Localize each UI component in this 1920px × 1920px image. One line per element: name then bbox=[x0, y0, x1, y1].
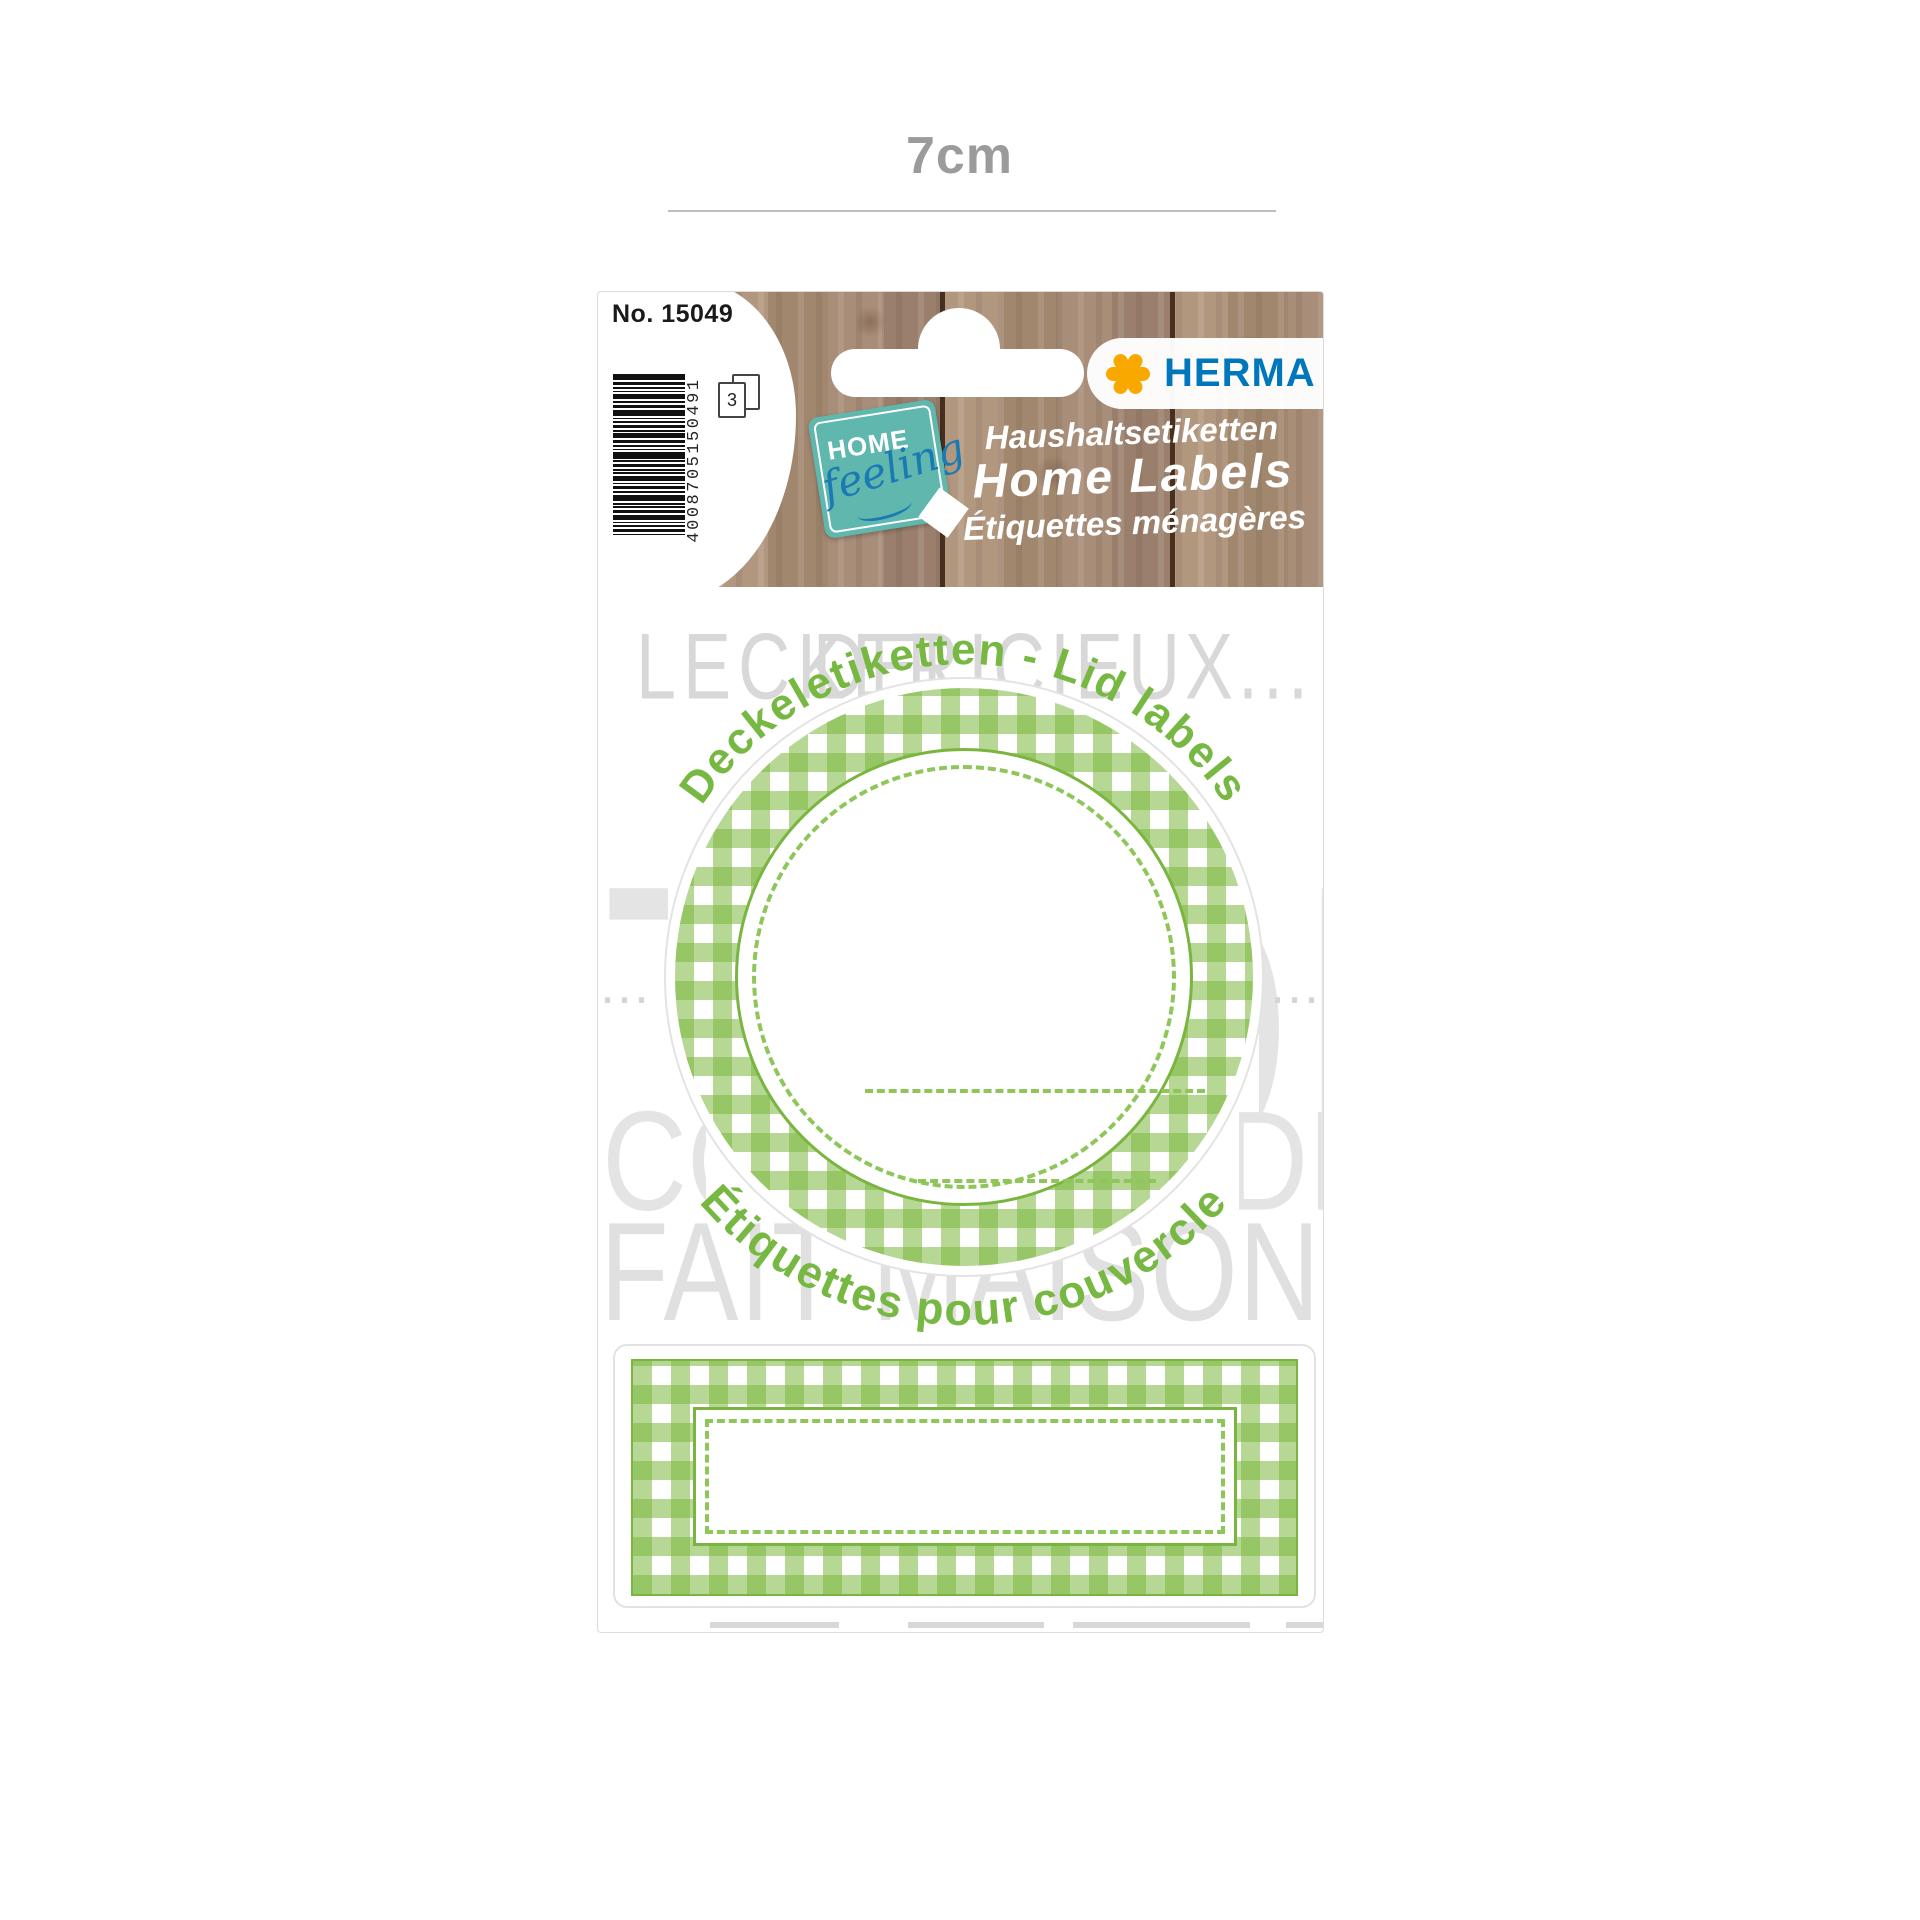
brand-band: HERMA bbox=[1087, 338, 1323, 409]
clipped-watermark-base bbox=[710, 1622, 839, 1628]
rect-label-gingham bbox=[631, 1359, 1298, 1596]
barcode-digits: 4008705150491 bbox=[685, 374, 705, 546]
clipped-watermark-base bbox=[908, 1622, 1044, 1628]
clipped-watermark-base bbox=[1073, 1622, 1250, 1628]
watermark-dots-right: ... bbox=[1270, 954, 1321, 1016]
product-number: No. 15049 bbox=[612, 300, 733, 329]
clipped-watermark-base bbox=[1286, 1622, 1323, 1628]
barcode-bars bbox=[613, 374, 685, 537]
sheet-count: 3 bbox=[718, 382, 746, 418]
wood-header: No. 15049 4008705150491 3 HERMA Haushalt… bbox=[598, 292, 1323, 587]
sheets-icon: 3 bbox=[716, 374, 762, 422]
dimension-label: 7cm bbox=[597, 126, 1322, 186]
dimension-line bbox=[668, 210, 1276, 212]
rect-label-sticker bbox=[613, 1344, 1316, 1608]
lid-label-sticker bbox=[664, 677, 1264, 1277]
package-titles: Haushaltsetiketten Home Labels Étiquette… bbox=[953, 408, 1313, 549]
home-feeling-badge: HOME feeling bbox=[807, 399, 953, 540]
lid-label-writing-area bbox=[735, 748, 1193, 1206]
watermark-dots-left: ... bbox=[600, 954, 651, 1016]
barcode: 4008705150491 bbox=[613, 374, 709, 546]
euro-hanger-slot bbox=[831, 349, 1084, 397]
rect-label-writing-area bbox=[693, 1407, 1237, 1546]
writing-line-1 bbox=[865, 1089, 1205, 1093]
rect-label-dashed-border bbox=[705, 1419, 1225, 1534]
writing-line-2 bbox=[918, 1179, 1156, 1183]
herma-asterisk-icon bbox=[1105, 351, 1151, 397]
lid-label-dashed-border bbox=[752, 765, 1176, 1189]
label-package: No. 15049 4008705150491 3 HERMA Haushalt… bbox=[597, 291, 1324, 1633]
brand-name: HERMA bbox=[1164, 351, 1316, 396]
product-image-stage: 7cm No. 15049 4008705150491 3 HERMA Haus… bbox=[0, 0, 1920, 1920]
